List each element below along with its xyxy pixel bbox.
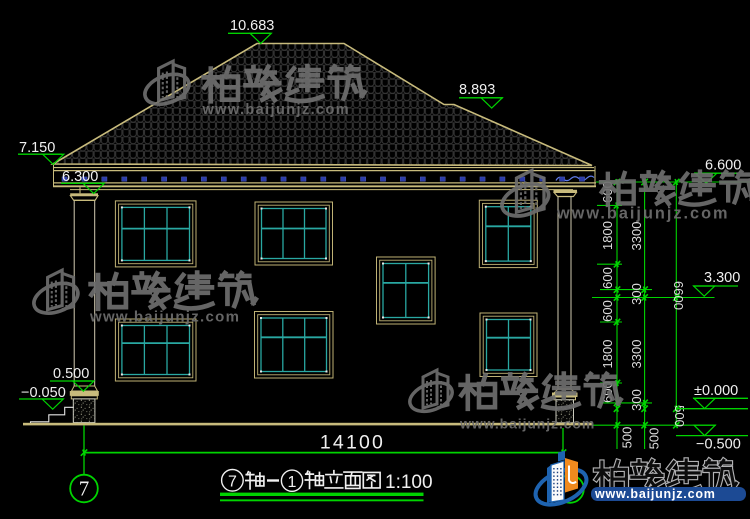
svg-text:300: 300: [629, 389, 644, 411]
svg-text:1800: 1800: [600, 221, 615, 250]
svg-text:www.baijunjz.com: www.baijunjz.com: [459, 416, 595, 432]
svg-text:500: 500: [620, 427, 635, 449]
svg-text:600: 600: [600, 267, 615, 289]
svg-text:300: 300: [629, 283, 644, 305]
svg-text:1800: 1800: [600, 340, 615, 369]
svg-text:0.500: 0.500: [53, 366, 89, 382]
svg-text:−0.050: −0.050: [21, 385, 66, 401]
svg-text:600: 600: [600, 300, 615, 322]
svg-text:1:100: 1:100: [385, 472, 433, 493]
svg-text:7.150: 7.150: [19, 140, 55, 156]
svg-text:6.600: 6.600: [705, 158, 741, 174]
svg-text:3.300: 3.300: [704, 270, 740, 286]
svg-text:www.baijunjz.com: www.baijunjz.com: [202, 102, 351, 118]
svg-text:3300: 3300: [629, 340, 644, 369]
svg-text:10.683: 10.683: [230, 18, 274, 34]
svg-text:www.baijunjz.com: www.baijunjz.com: [594, 487, 716, 501]
svg-text:6600: 6600: [671, 281, 686, 310]
svg-text:7: 7: [79, 477, 90, 501]
svg-text:7: 7: [228, 474, 237, 491]
svg-text:14100: 14100: [320, 432, 385, 454]
svg-text:www.baijunjz.com: www.baijunjz.com: [556, 205, 730, 223]
svg-text:3300: 3300: [629, 222, 644, 251]
svg-text:±0.000: ±0.000: [694, 383, 738, 399]
svg-text:www.baijunjz.com: www.baijunjz.com: [89, 309, 240, 326]
svg-text:6.300: 6.300: [62, 169, 98, 185]
svg-text:8.893: 8.893: [459, 82, 495, 98]
svg-text:1: 1: [288, 474, 297, 491]
svg-text:−0.500: −0.500: [696, 437, 741, 453]
svg-text:500: 500: [647, 428, 662, 450]
